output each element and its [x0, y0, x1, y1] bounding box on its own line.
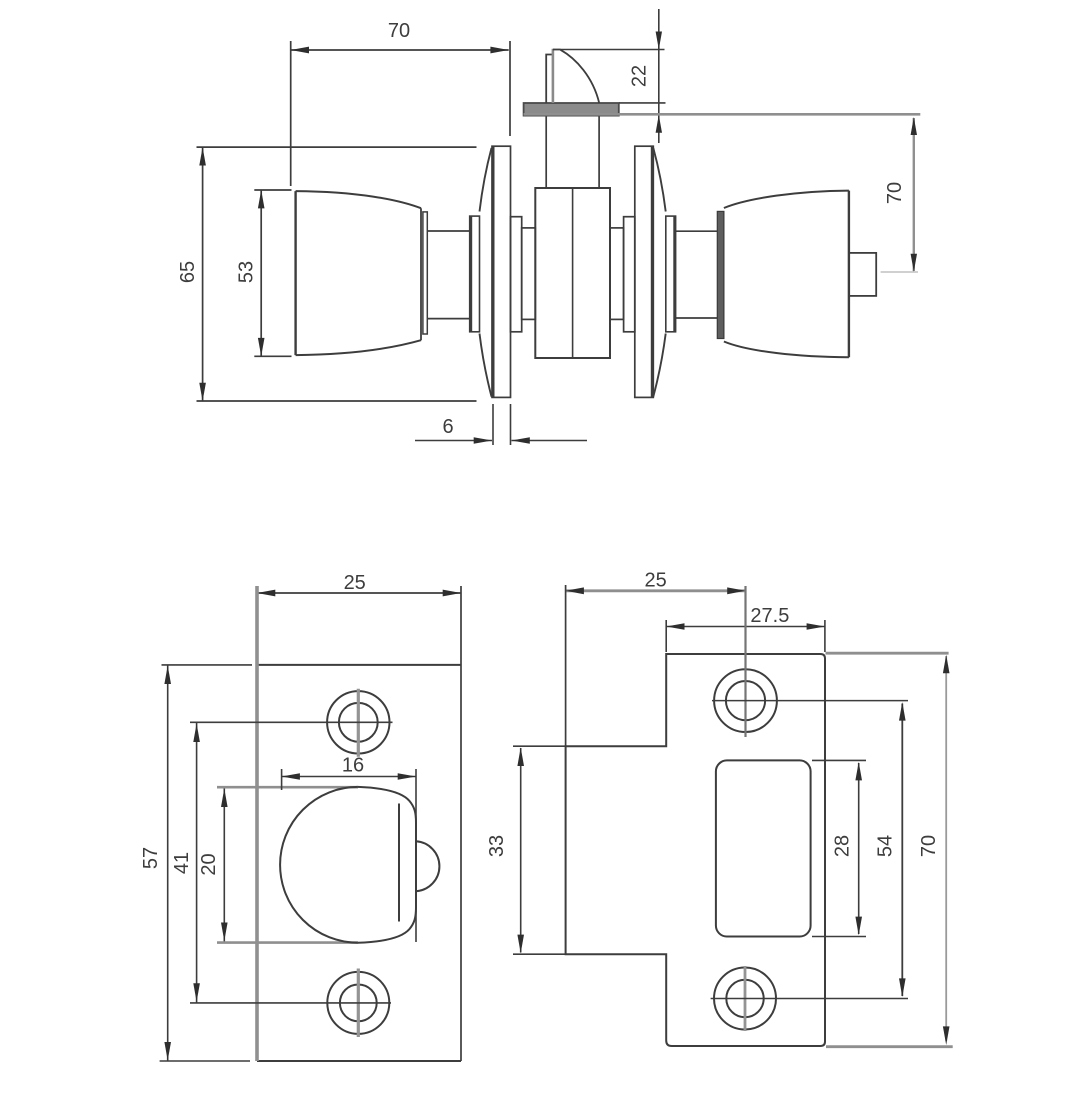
svg-text:53: 53	[236, 261, 258, 283]
svg-text:28: 28	[832, 835, 854, 857]
svg-text:70: 70	[918, 835, 940, 857]
svg-text:33: 33	[486, 835, 508, 857]
svg-text:25: 25	[344, 572, 366, 594]
svg-text:57: 57	[140, 847, 162, 869]
svg-text:54: 54	[875, 835, 897, 857]
svg-text:6: 6	[442, 416, 453, 438]
svg-text:22: 22	[629, 65, 651, 87]
svg-text:70: 70	[388, 20, 410, 42]
svg-text:27.5: 27.5	[750, 605, 789, 627]
svg-text:16: 16	[342, 755, 364, 777]
svg-text:70: 70	[884, 182, 906, 204]
svg-text:20: 20	[198, 853, 220, 875]
svg-text:41: 41	[171, 852, 193, 874]
svg-text:25: 25	[644, 570, 666, 592]
svg-text:65: 65	[177, 261, 199, 283]
